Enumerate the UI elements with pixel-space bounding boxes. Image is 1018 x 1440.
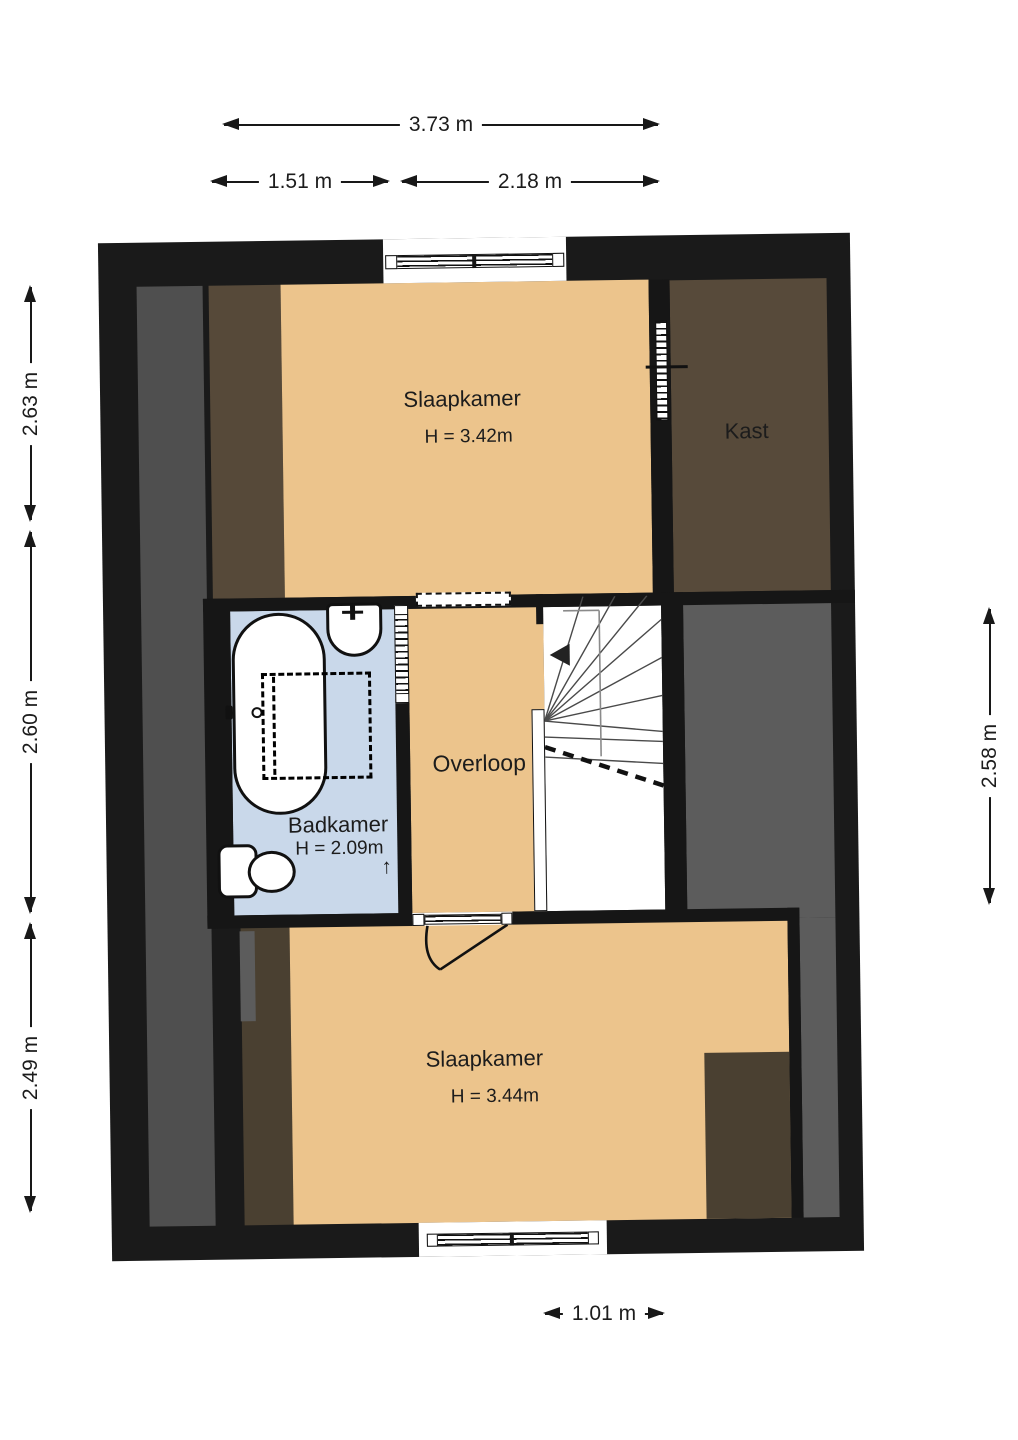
dimension-label: 2.18 m <box>489 170 571 194</box>
arrow-right-icon <box>643 175 660 187</box>
dimension-label: 1.51 m <box>259 170 341 194</box>
sliding-door-kast-icon <box>655 320 668 420</box>
dimension-label: 2.60 m <box>19 681 43 763</box>
door-bedroom-panel-icon <box>424 914 501 925</box>
arrow-left-icon <box>543 1307 560 1319</box>
floorplan-body: Slaapkamer H = 3.42m Kast Overloop Badka… <box>98 233 864 1261</box>
washbasin-faucet-bar-icon <box>342 611 363 614</box>
door-cap <box>394 605 408 615</box>
dimension-bottom: 1.01 m <box>543 1303 665 1325</box>
label-slaapkamer-bottom: Slaapkamer <box>425 1045 543 1073</box>
sloped-area-bottom-right-brown <box>704 1052 791 1219</box>
window-mullion <box>472 254 476 268</box>
bathtub-faucet-icon <box>225 705 232 719</box>
window-mullion <box>510 1233 514 1246</box>
window-cap <box>552 253 564 267</box>
wall-badkamer-overloop <box>395 699 412 915</box>
window-cap <box>588 1231 599 1244</box>
sloped-area-right-gray-lower <box>799 917 839 1217</box>
stairs-direction-arrow-icon <box>550 644 570 666</box>
dimension-label: 3.73 m <box>400 113 482 137</box>
arrow-up-icon <box>24 530 36 547</box>
arrow-left-icon <box>222 118 239 130</box>
label-slaapkamer-bottom-height: H = 3.44m <box>451 1085 539 1108</box>
label-slaapkamer-top: Slaapkamer <box>403 385 521 413</box>
dimension-label: 1.01 m <box>563 1302 645 1326</box>
sloped-area-left-brown-top <box>209 285 285 602</box>
label-slaapkamer-top-height: H = 3.42m <box>424 426 512 449</box>
window-cap <box>427 1234 438 1247</box>
shower-dashed-outline <box>261 672 372 781</box>
arrow-down-icon <box>24 897 36 914</box>
arrow-up-icon <box>24 285 36 302</box>
opening-dashed-icon <box>416 592 511 607</box>
window-cap <box>385 255 397 269</box>
dimension-left-top: 2.63 m <box>20 285 42 522</box>
label-badkamer: Badkamer <box>288 811 389 838</box>
wall-stub-gray <box>240 931 256 1021</box>
label-kast: Kast <box>724 418 768 445</box>
stairs-icon <box>543 595 665 917</box>
label-overloop: Overloop <box>432 749 526 777</box>
label-badkamer-height: H = 2.09m <box>295 837 383 860</box>
dimension-top-total: 3.73 m <box>222 114 660 136</box>
sloped-area-left-gray <box>137 286 216 1227</box>
arrow-right-icon <box>373 175 390 187</box>
dimension-label: 2.58 m <box>978 715 1002 797</box>
dimension-top-right: 2.18 m <box>400 171 660 193</box>
arrow-down-icon <box>24 505 36 522</box>
dimension-left-middle: 2.60 m <box>20 530 42 914</box>
arrow-left-icon <box>400 175 417 187</box>
dimension-label: 2.63 m <box>19 362 43 444</box>
dimension-right-middle: 2.58 m <box>979 607 1001 905</box>
arrow-right-icon <box>648 1307 665 1319</box>
arrow-down-icon <box>983 888 995 905</box>
dimension-left-bottom: 2.49 m <box>20 922 42 1213</box>
door-swing-icon <box>407 925 513 988</box>
dimension-top-left: 1.51 m <box>210 171 390 193</box>
wall-stairs-right <box>661 592 688 919</box>
door-cap <box>395 693 409 703</box>
arrow-right-icon <box>643 118 660 130</box>
floorplan-canvas: 3.73 m 1.51 m 2.18 m 2.63 m 2.60 m 2.49 … <box>0 0 1018 1440</box>
dimension-label: 2.49 m <box>19 1026 43 1108</box>
arrow-up-icon <box>24 922 36 939</box>
arrow-up-icon <box>983 607 995 624</box>
sloped-area-right-gray <box>683 600 835 919</box>
arrow-down-icon <box>24 1196 36 1213</box>
sliding-door-badkamer-icon <box>394 605 409 703</box>
door-cap <box>501 913 512 925</box>
badkamer-direction-arrow-icon: ↑ <box>381 855 392 879</box>
arrow-left-icon <box>210 175 227 187</box>
door-cap <box>412 914 424 926</box>
